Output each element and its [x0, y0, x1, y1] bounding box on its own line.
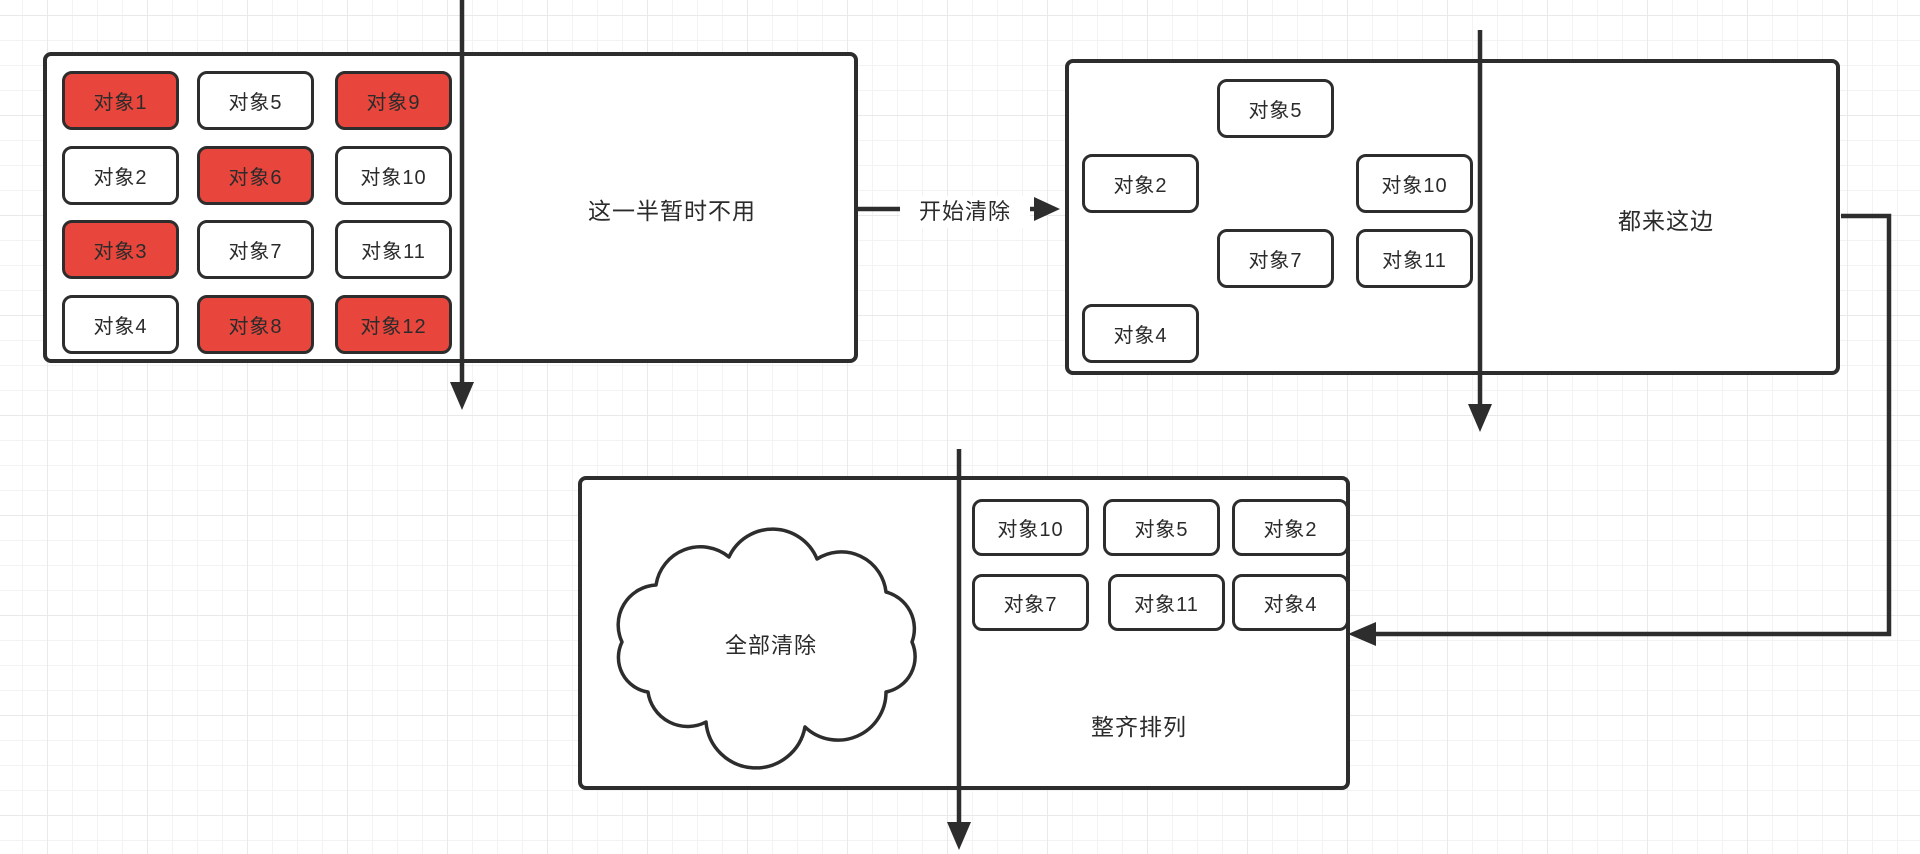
diagram-canvas: 对象1 对象5 对象9 对象2 对象6 对象10 对象3 对象7 对象11 对象… [0, 0, 1920, 854]
heap-object: 对象2 [1232, 499, 1349, 556]
heap-object: 对象5 [1103, 499, 1220, 556]
heap-object: 对象10 [972, 499, 1089, 556]
heap-object: 对象11 [335, 220, 452, 279]
heap-object: 对象2 [62, 146, 179, 205]
heap-object: 对象10 [335, 146, 452, 205]
heap-object: 对象7 [972, 574, 1089, 631]
right-heap-box: 对象5 对象2 对象10 对象7 对象11 对象4 都来这边 [1065, 59, 1840, 375]
heap-object: 对象2 [1082, 154, 1199, 213]
heap-object: 对象11 [1356, 229, 1473, 288]
left-heap-caption: 这一半暂时不用 [502, 196, 842, 226]
heap-object: 对象1 [62, 71, 179, 130]
heap-object: 对象3 [62, 220, 179, 279]
heap-object: 对象6 [197, 146, 314, 205]
heap-object: 对象5 [1217, 79, 1334, 138]
heap-object: 对象10 [1356, 154, 1473, 213]
heap-object: 对象9 [335, 71, 452, 130]
heap-object: 对象7 [1217, 229, 1334, 288]
heap-object: 对象8 [197, 295, 314, 354]
heap-object: 对象4 [1232, 574, 1349, 631]
clear-start-arrow-label: 开始清除 [900, 196, 1030, 228]
left-heap-box: 对象1 对象5 对象9 对象2 对象6 对象10 对象3 对象7 对象11 对象… [43, 52, 858, 363]
cloud-label: 全部清除 [671, 631, 871, 661]
heap-object: 对象4 [62, 295, 179, 354]
heap-object: 对象5 [197, 71, 314, 130]
heap-object: 对象12 [335, 295, 452, 354]
heap-object: 对象4 [1082, 304, 1199, 363]
heap-object: 对象11 [1108, 574, 1225, 631]
compact-box-caption: 整齐排列 [989, 712, 1289, 742]
right-heap-caption: 都来这边 [1516, 206, 1816, 236]
compact-box: 全部清除 对象10 对象5 对象2 对象7 对象11 对象4 整齐排列 [578, 476, 1350, 790]
heap-object: 对象7 [197, 220, 314, 279]
